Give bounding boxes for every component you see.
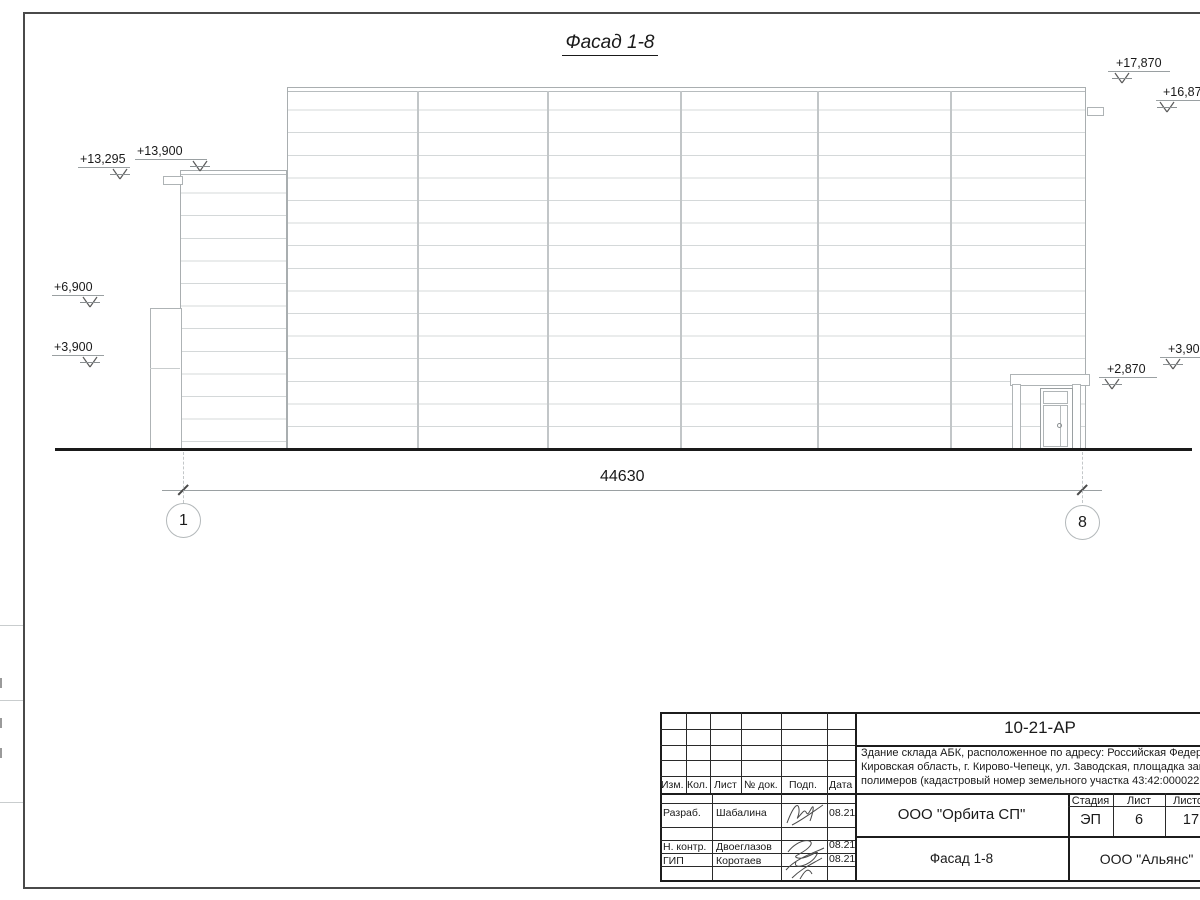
elevation-arrow-icon [80,356,100,368]
elevation-label: +13,900 [137,144,183,158]
frame-top [23,12,1200,14]
row-role: Разраб. [663,807,701,819]
elevation-label: +3,90 [1168,342,1200,356]
facade-tall-section [287,87,1086,450]
titleblock-border [660,712,662,882]
elevation-arrow-icon [110,168,130,180]
titleblock-line [741,712,742,793]
titleblock-border [855,836,1200,838]
left-margin-mark [0,718,2,728]
axis-bubble-8: 8 [1065,505,1100,540]
door-transom-window [1043,391,1068,404]
elevation-label: +6,900 [54,280,93,294]
drawing-sheet: { "drawing": { "title": "Фасад 1-8", "di… [0,0,1200,900]
elevation-arrow-icon [190,160,210,172]
elevation-label: +13,295 [80,152,126,166]
titleblock-line [660,729,855,730]
elevation-label: +16,87 [1163,85,1200,99]
signature [784,799,826,827]
elevation-label: +17,870 [1116,56,1162,70]
drawing-title: Фасад 1-8 [520,32,700,54]
sheets-header: Листов [1165,795,1200,807]
axis-line-8 [1082,452,1084,503]
sheet-name: Фасад 1-8 [855,851,1068,866]
panel-joint [950,91,952,448]
left-annex [150,308,182,450]
titleblock-line [660,745,855,746]
row-name: Коротаев [716,855,761,867]
sheet-value: 6 [1113,812,1165,828]
axis-number: 8 [1078,514,1087,532]
elevation-arrow-icon [1112,72,1132,84]
row-role: ГИП [663,855,684,867]
titleblock-line [710,712,711,793]
panel-joint [547,91,549,448]
row-date: 08.21 [829,807,855,819]
elevation-arrow-icon [1102,378,1122,390]
titleblock-line [712,793,713,880]
sheets-value: 17 [1165,812,1200,828]
row-name: Шабалина [716,807,767,819]
object-description-line: Кировская область, г. Кирово-Чепецк, ул.… [861,761,1200,773]
header-doc: № док. [744,779,778,791]
left-margin-mark [0,748,2,758]
left-annex-divider [150,368,180,369]
frame-left [23,12,25,889]
elevation-arrow-icon [80,296,100,308]
left-margin-divider [0,700,23,701]
facade-low-section [180,170,287,450]
left-canopy-ledge [163,176,183,185]
left-margin-divider [0,625,23,626]
axis-bubble-1: 1 [166,503,201,538]
stage-value: ЭП [1068,812,1113,828]
elevation-label: +2,870 [1107,362,1146,376]
header-izm: Изм. [661,779,684,791]
object-description-line: полимеров (кадастровый номер земельного … [861,775,1200,787]
row-name: Двоеглазов [716,841,772,853]
right-roof-ledge [1087,107,1104,116]
row-date: 08.21 [829,839,855,851]
parapet-line [288,91,1085,92]
axis-number: 1 [179,512,188,530]
titleblock-line [781,712,782,793]
entrance-left-post [1012,384,1021,450]
frame-bottom [23,887,1200,889]
entrance-door-frame [1040,388,1073,450]
stage-header: Стадия [1068,795,1113,807]
elevation-label: +3,900 [54,340,93,354]
left-margin-mark [0,678,2,688]
titleblock-line [660,827,855,828]
doc-number: 10-21-АР [855,718,1200,738]
panel-joint [817,91,819,448]
parapet-line [181,174,286,175]
door-leaf [1043,405,1068,447]
entrance-right-post [1072,384,1081,450]
door-handle [1057,423,1062,428]
axis-line-1 [183,452,185,503]
org-client: ООО "Альянс" [1068,851,1200,867]
dimension-line [162,490,1102,491]
object-description-line: Здание склада АБК, расположенное по адре… [861,747,1200,759]
titleblock-border [660,880,1200,882]
sheet-header: Лист [1113,795,1165,807]
org-contractor: ООО "Орбита СП" [855,806,1068,823]
titleblock-line [660,760,855,761]
header-kol: Кол. [687,779,708,791]
signature [782,834,828,880]
elevation-arrow-icon [1163,358,1183,370]
ground-line [55,448,1192,451]
titleblock-line [660,776,855,777]
row-role: Н. контр. [663,841,706,853]
header-data: Дата [829,779,852,791]
dimension-value: 44630 [600,468,645,486]
header-podp: Подп. [789,779,817,791]
left-margin-divider [0,802,23,803]
header-list: Лист [714,779,737,791]
panel-joint [417,91,419,448]
elevation-arrow-icon [1157,101,1177,113]
row-date: 08.21 [829,853,855,865]
panel-joint [680,91,682,448]
titleblock-line [827,712,828,793]
